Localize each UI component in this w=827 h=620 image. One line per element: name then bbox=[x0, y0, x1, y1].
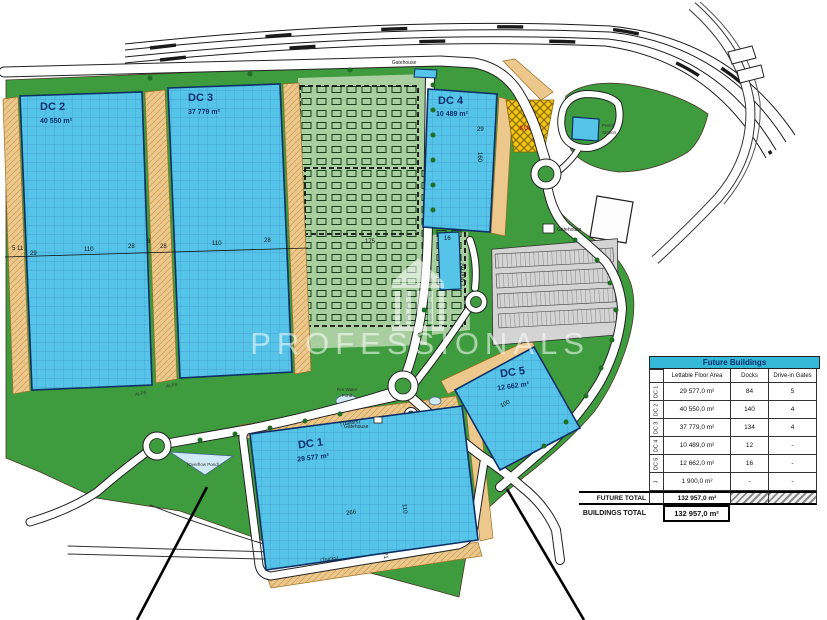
row-label: DC 2 bbox=[654, 403, 660, 416]
tree-icon bbox=[608, 281, 613, 286]
future-total-value: 132 957,0 m² bbox=[663, 491, 730, 505]
table-row: DC 4 10 489,0 m² 12 - bbox=[579, 437, 820, 455]
row-label: DC 1 bbox=[654, 385, 660, 398]
cell-gates: - bbox=[768, 437, 817, 455]
dim-label: 110 bbox=[84, 247, 94, 253]
tree-icon bbox=[431, 208, 436, 213]
dim-label: 5 11 bbox=[12, 246, 24, 252]
cell-gates: - bbox=[768, 455, 817, 473]
cell-docks: 84 bbox=[730, 383, 768, 401]
watermark-text: PROFESSIONALS bbox=[250, 326, 590, 361]
tree-icon bbox=[431, 108, 436, 113]
buildings-total-value: 132 957,0 m² bbox=[663, 505, 730, 522]
table-row: DC 2 40 550,0 m² 140 4 bbox=[579, 401, 820, 419]
table-title: Future Buildings bbox=[649, 356, 820, 369]
gatehouse-top-label: Gatehouse bbox=[392, 60, 417, 66]
cell-area: 37 779,0 m² bbox=[663, 419, 730, 437]
cell-gates: 5 bbox=[768, 383, 817, 401]
hatched-cell bbox=[768, 491, 817, 505]
tree-icon bbox=[248, 72, 253, 77]
tree-icon bbox=[595, 258, 600, 263]
tree-icon bbox=[233, 432, 238, 437]
dim-label: 175 bbox=[365, 239, 376, 245]
cell-docks: - bbox=[730, 473, 768, 491]
cell-gates: - bbox=[768, 473, 817, 491]
row-label: DC 5 bbox=[654, 457, 660, 470]
row-label: DC 4 bbox=[654, 439, 660, 452]
dim-label: 29 bbox=[30, 251, 37, 257]
dc2-area: 40 550 m² bbox=[40, 118, 73, 125]
cell-area: 40 550,0 m² bbox=[663, 401, 730, 419]
tree-icon bbox=[614, 308, 619, 313]
buildings-total-label: BUILDINGS TOTAL bbox=[579, 505, 649, 522]
table-row: DC 1 29 577,0 m² 84 5 bbox=[579, 383, 820, 401]
cell-docks: 140 bbox=[730, 401, 768, 419]
gatehouse-building-center bbox=[374, 417, 382, 423]
tree-icon bbox=[303, 419, 308, 424]
tree-icon bbox=[542, 444, 547, 449]
dim-label: 28 bbox=[160, 244, 167, 250]
future-total-row: FUTURE TOTAL 132 957,0 m² bbox=[579, 491, 820, 505]
tree-icon bbox=[422, 308, 427, 313]
dim-label: 28 bbox=[128, 244, 135, 250]
tree-icon bbox=[431, 158, 436, 163]
fire-water-label-1: Fire Water bbox=[337, 387, 358, 392]
table-row: DC 3 37 779,0 m² 134 4 bbox=[579, 419, 820, 437]
cell-gates: 4 bbox=[768, 419, 817, 437]
dim-label: 16 bbox=[444, 236, 451, 242]
dim-label: 28 bbox=[264, 238, 271, 244]
cell-area: 10 489,0 m² bbox=[663, 437, 730, 455]
cell-gates: 4 bbox=[768, 401, 817, 419]
dim-label: 160 bbox=[476, 152, 482, 163]
cell-docks: 16 bbox=[730, 455, 768, 473]
tree-icon bbox=[431, 183, 436, 188]
tree-icon bbox=[564, 420, 569, 425]
col-header-gates: Drive-in Gates bbox=[768, 369, 817, 383]
dc3-name: DC 3 bbox=[188, 92, 213, 104]
tree-icon bbox=[268, 426, 273, 431]
j-area-label: 1 900 m² bbox=[461, 263, 467, 287]
pond-small bbox=[429, 397, 441, 405]
cell-docks: 12 bbox=[730, 437, 768, 455]
future-total-label: FUTURE TOTAL bbox=[579, 491, 649, 505]
building-dc2 bbox=[20, 92, 152, 390]
future-buildings-table: Future Buildings Lettable Floor Area Doc… bbox=[579, 356, 820, 522]
dc3-area: 37 779 m² bbox=[188, 109, 221, 116]
cell-area: 29 577,0 m² bbox=[663, 383, 730, 401]
gatehouse-east-label: Gatehouse bbox=[557, 227, 582, 233]
cell-area: 12 662,0 m² bbox=[663, 455, 730, 473]
petrol-label-1: Petrol bbox=[602, 123, 614, 128]
dc4-area: 10 489 m² bbox=[436, 111, 469, 118]
outlined-building bbox=[590, 196, 633, 243]
cell-area: 1 900,0 m² bbox=[663, 473, 730, 491]
row-label: DC 3 bbox=[654, 421, 660, 434]
gatehouse-building-top bbox=[414, 69, 437, 78]
site-plan-drawing: KULAK bbox=[0, 0, 827, 620]
site-plan-page: KULAK bbox=[0, 0, 827, 620]
building-dc1 bbox=[250, 406, 478, 570]
dim-label: 29 bbox=[477, 127, 484, 133]
hatched-cell bbox=[730, 491, 768, 505]
col-header-docks: Docks bbox=[730, 369, 768, 383]
petrol-station-building bbox=[572, 117, 599, 141]
fire-water-label-2: Pond bbox=[342, 393, 353, 398]
overflow-pond-label: (Overflow Pond) bbox=[187, 462, 220, 467]
table-row: DC 5 12 662,0 m² 16 - bbox=[579, 455, 820, 473]
tree-icon bbox=[610, 338, 615, 343]
tree-icon bbox=[338, 412, 343, 417]
row-label: J bbox=[654, 480, 660, 483]
tree-icon bbox=[148, 76, 153, 81]
tree-icon bbox=[348, 68, 353, 73]
col-header-area: Lettable Floor Area bbox=[663, 369, 730, 383]
table-row: J 1 900,0 m² - - bbox=[579, 473, 820, 491]
cell-docks: 134 bbox=[730, 419, 768, 437]
table-header-row: Lettable Floor Area Docks Drive-in Gates bbox=[579, 369, 820, 383]
dc4-name: DC 4 bbox=[438, 95, 464, 107]
petrol-label-2: Station bbox=[602, 130, 617, 135]
dim-label: 110 bbox=[401, 504, 408, 515]
dim-label: 110 bbox=[212, 241, 222, 247]
tree-icon bbox=[431, 133, 436, 138]
tree-icon bbox=[431, 83, 436, 88]
dc2-name: DC 2 bbox=[40, 101, 65, 113]
tree-icon bbox=[198, 438, 203, 443]
tree-icon bbox=[573, 238, 578, 243]
buildings-total-row: BUILDINGS TOTAL 132 957,0 m² bbox=[579, 505, 820, 522]
gatehouse-building-east bbox=[543, 224, 554, 233]
